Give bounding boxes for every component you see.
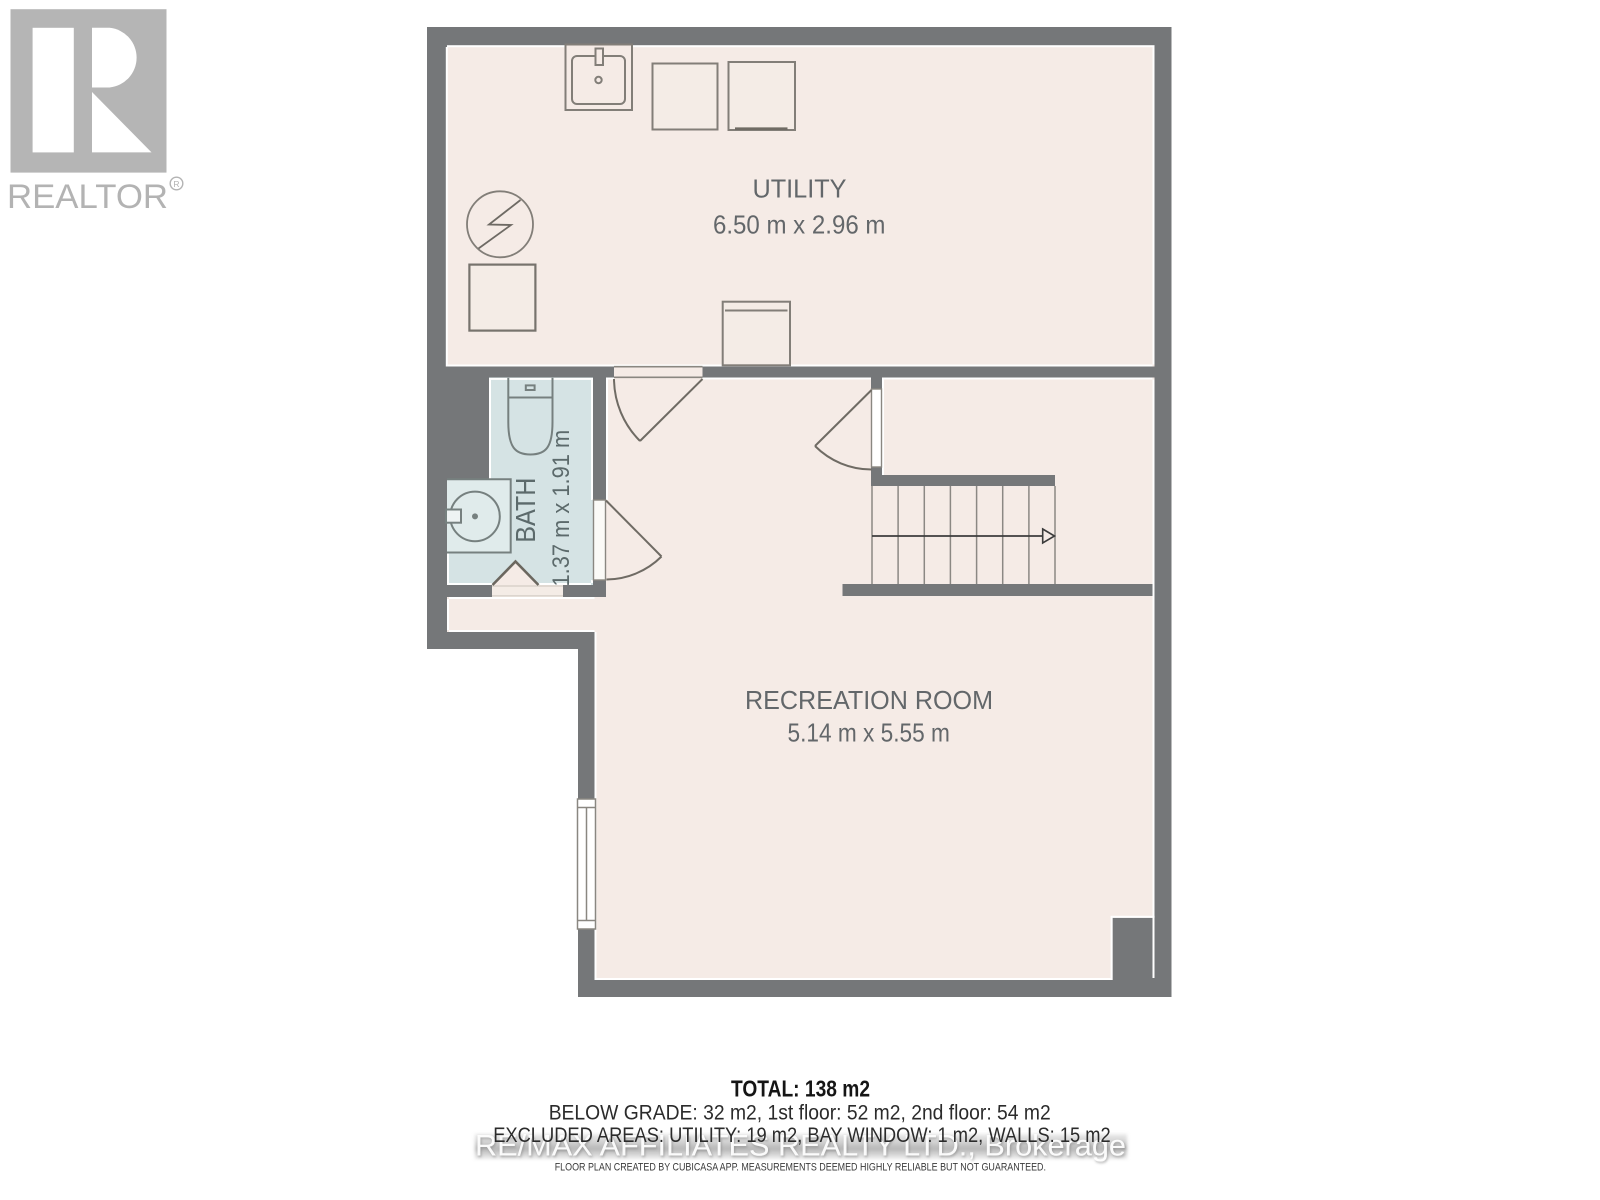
svg-text:RECREATION ROOM: RECREATION ROOM xyxy=(745,685,993,715)
svg-text:FLOOR PLAN CREATED BY CUBICASA: FLOOR PLAN CREATED BY CUBICASA APP. MEAS… xyxy=(555,1162,1046,1174)
svg-text:EXCLUDED AREAS: UTILITY: 19 m2: EXCLUDED AREAS: UTILITY: 19 m2, BAY WIND… xyxy=(493,1123,1110,1147)
svg-text:TOTAL: 138 m2: TOTAL: 138 m2 xyxy=(731,1076,870,1102)
svg-text:5.14 m x 5.55 m: 5.14 m x 5.55 m xyxy=(788,718,950,748)
svg-text:R: R xyxy=(173,179,179,189)
svg-text:BATH: BATH xyxy=(510,478,541,543)
svg-text:UTILITY: UTILITY xyxy=(753,174,847,204)
svg-text:BELOW GRADE: 32 m2, 1st floor:: BELOW GRADE: 32 m2, 1st floor: 52 m2, 2n… xyxy=(549,1101,1051,1125)
svg-text:1.37 m x 1.91 m: 1.37 m x 1.91 m xyxy=(548,430,575,587)
svg-text:6.50 m x 2.96 m: 6.50 m x 2.96 m xyxy=(713,210,885,240)
svg-text:REALTOR: REALTOR xyxy=(7,178,168,216)
